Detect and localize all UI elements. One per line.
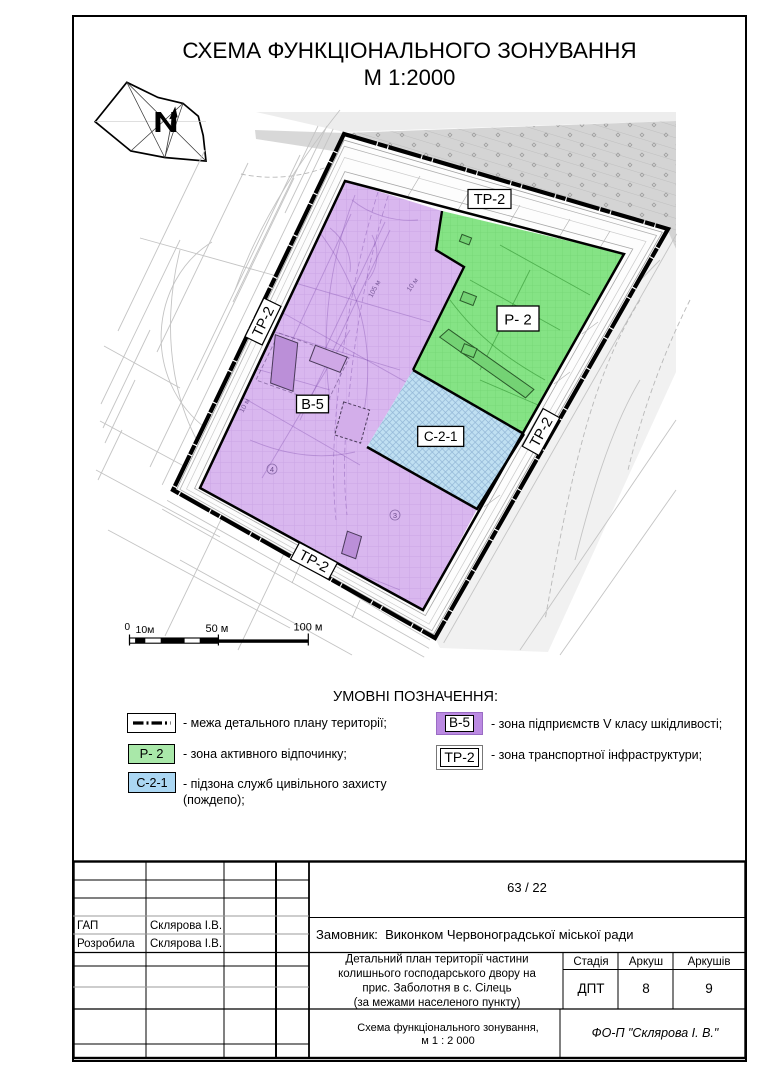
svg-text:С-2-1: С-2-1: [424, 429, 458, 444]
svg-text:колишнього господарського двор: колишнього господарського двору на: [338, 968, 536, 980]
svg-text:м 1 : 2 000: м 1 : 2 000: [421, 1035, 474, 1047]
svg-text:В-5: В-5: [301, 397, 324, 413]
svg-text:Склярова І.В.: Склярова І.В.: [150, 920, 222, 932]
svg-text:ТР-2: ТР-2: [474, 192, 505, 208]
svg-text:Схема функціонального зонуванн: Схема функціонального зонування,: [357, 1022, 538, 1034]
svg-text:100 м: 100 м: [294, 622, 323, 634]
svg-text:8: 8: [642, 981, 650, 996]
svg-text:прис. Заболотня в с. Сілець: прис. Заболотня в с. Сілець: [362, 983, 511, 995]
svg-text:9: 9: [705, 981, 713, 996]
svg-text:Розробила: Розробила: [77, 938, 135, 950]
svg-text:50 м: 50 м: [206, 623, 229, 635]
svg-text:Аркуш: Аркуш: [629, 956, 663, 968]
svg-text:4: 4: [270, 465, 274, 474]
svg-text:10м: 10м: [136, 624, 155, 636]
svg-text:ДПТ: ДПТ: [577, 981, 604, 996]
svg-text:ГАП: ГАП: [77, 920, 98, 932]
svg-text:63 / 22: 63 / 22: [507, 880, 547, 895]
svg-text:Стадія: Стадія: [573, 956, 608, 968]
svg-text:0: 0: [125, 622, 131, 633]
svg-text:Аркушів: Аркушів: [688, 956, 731, 968]
svg-text:Детальний план території части: Детальний план території частини: [345, 954, 528, 966]
svg-text:Склярова І.В.: Склярова І.В.: [150, 938, 222, 950]
svg-text:ФО-П "Склярова І. В.": ФО-П "Склярова І. В.": [592, 1026, 719, 1040]
svg-text:Р- 2: Р- 2: [504, 312, 532, 329]
svg-text:3: 3: [393, 511, 397, 520]
svg-text:(за межами населеного пункту): (за межами населеного пункту): [354, 997, 521, 1009]
svg-text:Замовник: Виконком Червоногра: Замовник: Виконком Червоноградської місь…: [316, 927, 633, 942]
